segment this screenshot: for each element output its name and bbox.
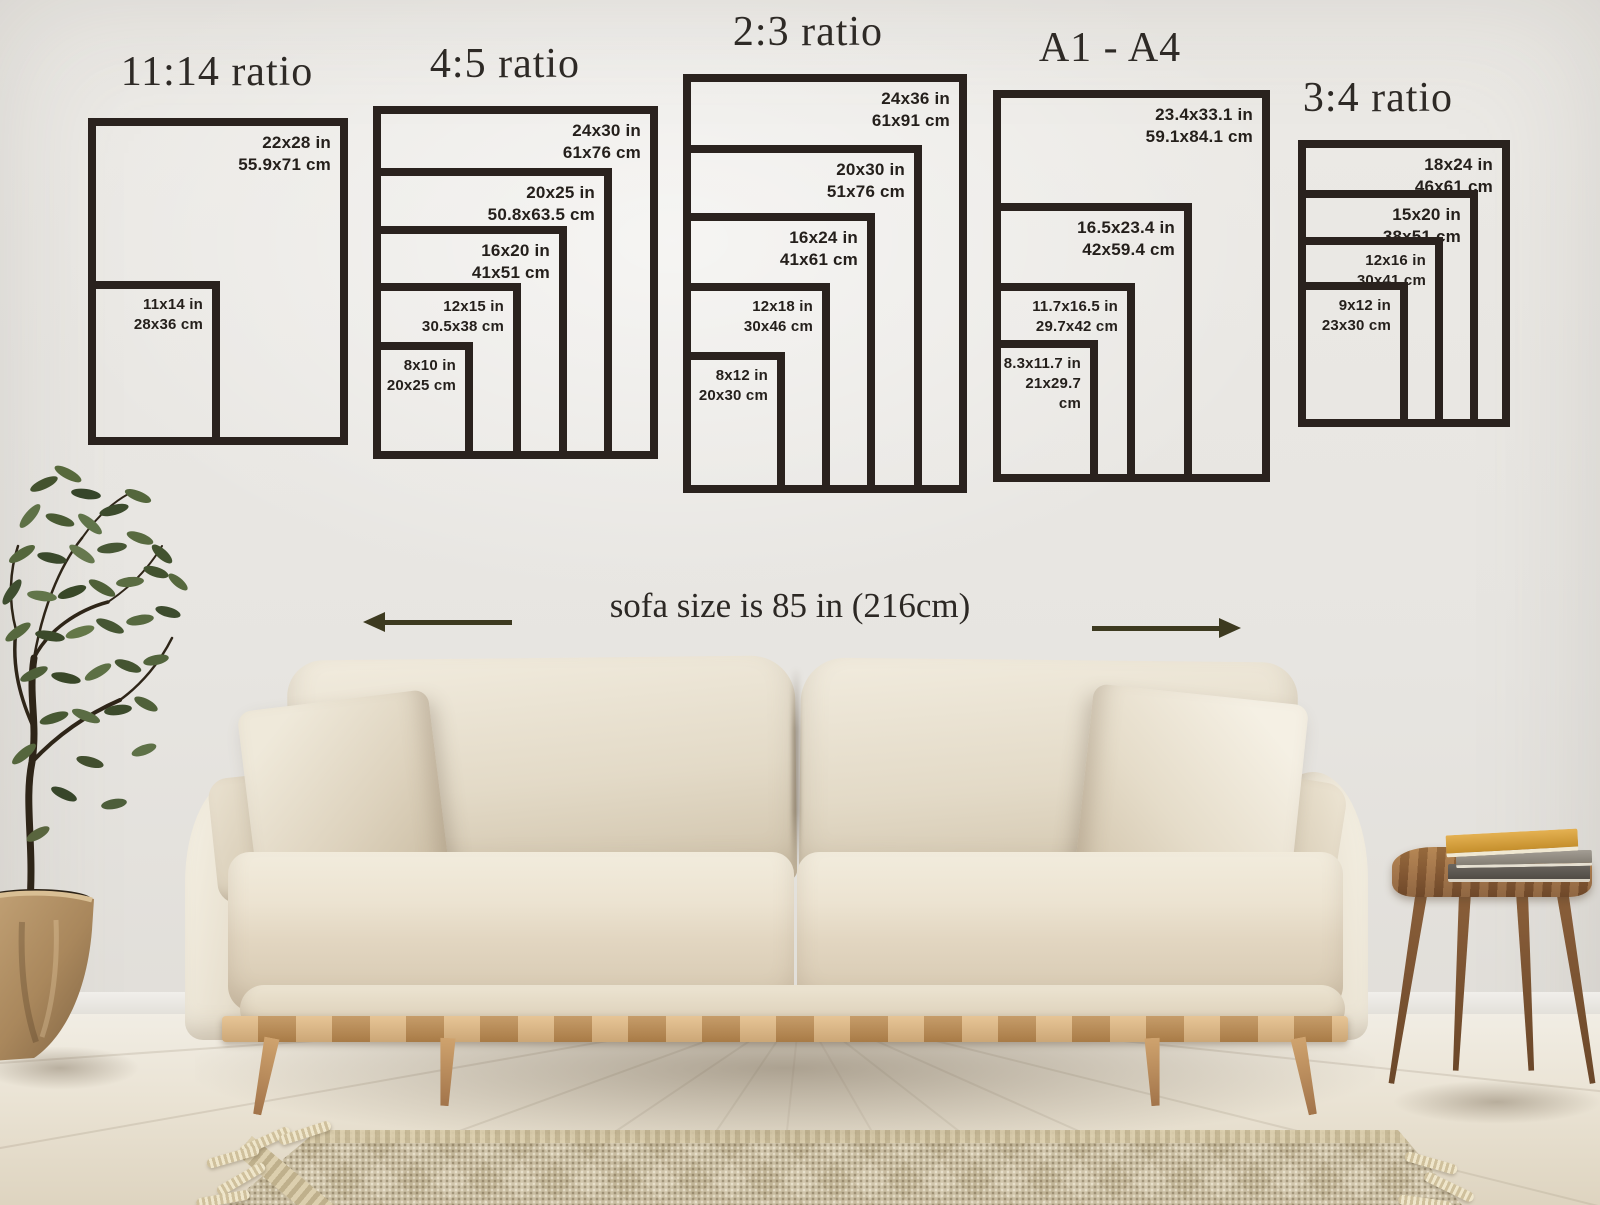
size-label: 9x12 in23x30 cm [1322, 296, 1391, 336]
size-label: 11x14 in28x36 cm [134, 295, 203, 335]
size-label: 16x24 in41x61 cm [780, 227, 858, 272]
size-frame-8x12: 8x12 in20x30 cm [683, 352, 785, 493]
size-label: 8x12 in20x30 cm [699, 366, 768, 406]
size-label: 22x28 in55.9x71 cm [238, 132, 331, 177]
side-table-shadow [1392, 1080, 1600, 1124]
size-frame-8x10: 8x10 in20x25 cm [373, 342, 473, 459]
size-label: 16.5x23.4 in42x59.4 cm [1077, 217, 1175, 262]
right-arrow-icon [1092, 626, 1220, 631]
group-title-11-14: 11:14 ratio [57, 48, 377, 96]
size-label: 16x20 in41x51 cm [472, 240, 550, 285]
group-title-a1-a4: A1 - A4 [950, 24, 1270, 72]
size-label: 12x15 in30.5x38 cm [422, 297, 504, 337]
size-label: 24x36 in61x91 cm [872, 88, 950, 133]
sofa-size-note: sofa size is 85 in (216cm) [490, 586, 1090, 626]
poster-size-guide-scene: 11:14 ratio 22x28 in55.9x71 cm 11x14 in2… [0, 0, 1600, 1205]
size-label: 20x25 in50.8x63.5 cm [488, 182, 595, 227]
size-label: 12x18 in30x46 cm [744, 297, 813, 337]
group-title-3-4: 3:4 ratio [1218, 74, 1538, 122]
plant-pot [0, 889, 94, 1062]
size-label: 11.7x16.5 in29.7x42 cm [1032, 297, 1118, 337]
size-label: 24x30 in61x76 cm [563, 120, 641, 165]
sofa-wood-rail [222, 1016, 1348, 1042]
size-label: 8x10 in20x25 cm [387, 356, 456, 396]
left-arrow-icon [384, 620, 512, 625]
size-label: 8.3x11.7 in21x29.7 cm [1001, 354, 1081, 413]
size-frame-a4: 8.3x11.7 in21x29.7 cm [993, 340, 1098, 482]
potted-plant [0, 462, 232, 1062]
group-title-2-3: 2:3 ratio [648, 8, 968, 56]
size-label: 20x30 in51x76 cm [827, 159, 905, 204]
sofa-floor-shadow [195, 1026, 1375, 1146]
group-title-4-5: 4:5 ratio [345, 40, 665, 88]
back-cushion-crease [792, 668, 800, 873]
size-frame-11x14: 11x14 in28x36 cm [88, 281, 220, 445]
size-frame-9x12: 9x12 in23x30 cm [1298, 282, 1408, 427]
